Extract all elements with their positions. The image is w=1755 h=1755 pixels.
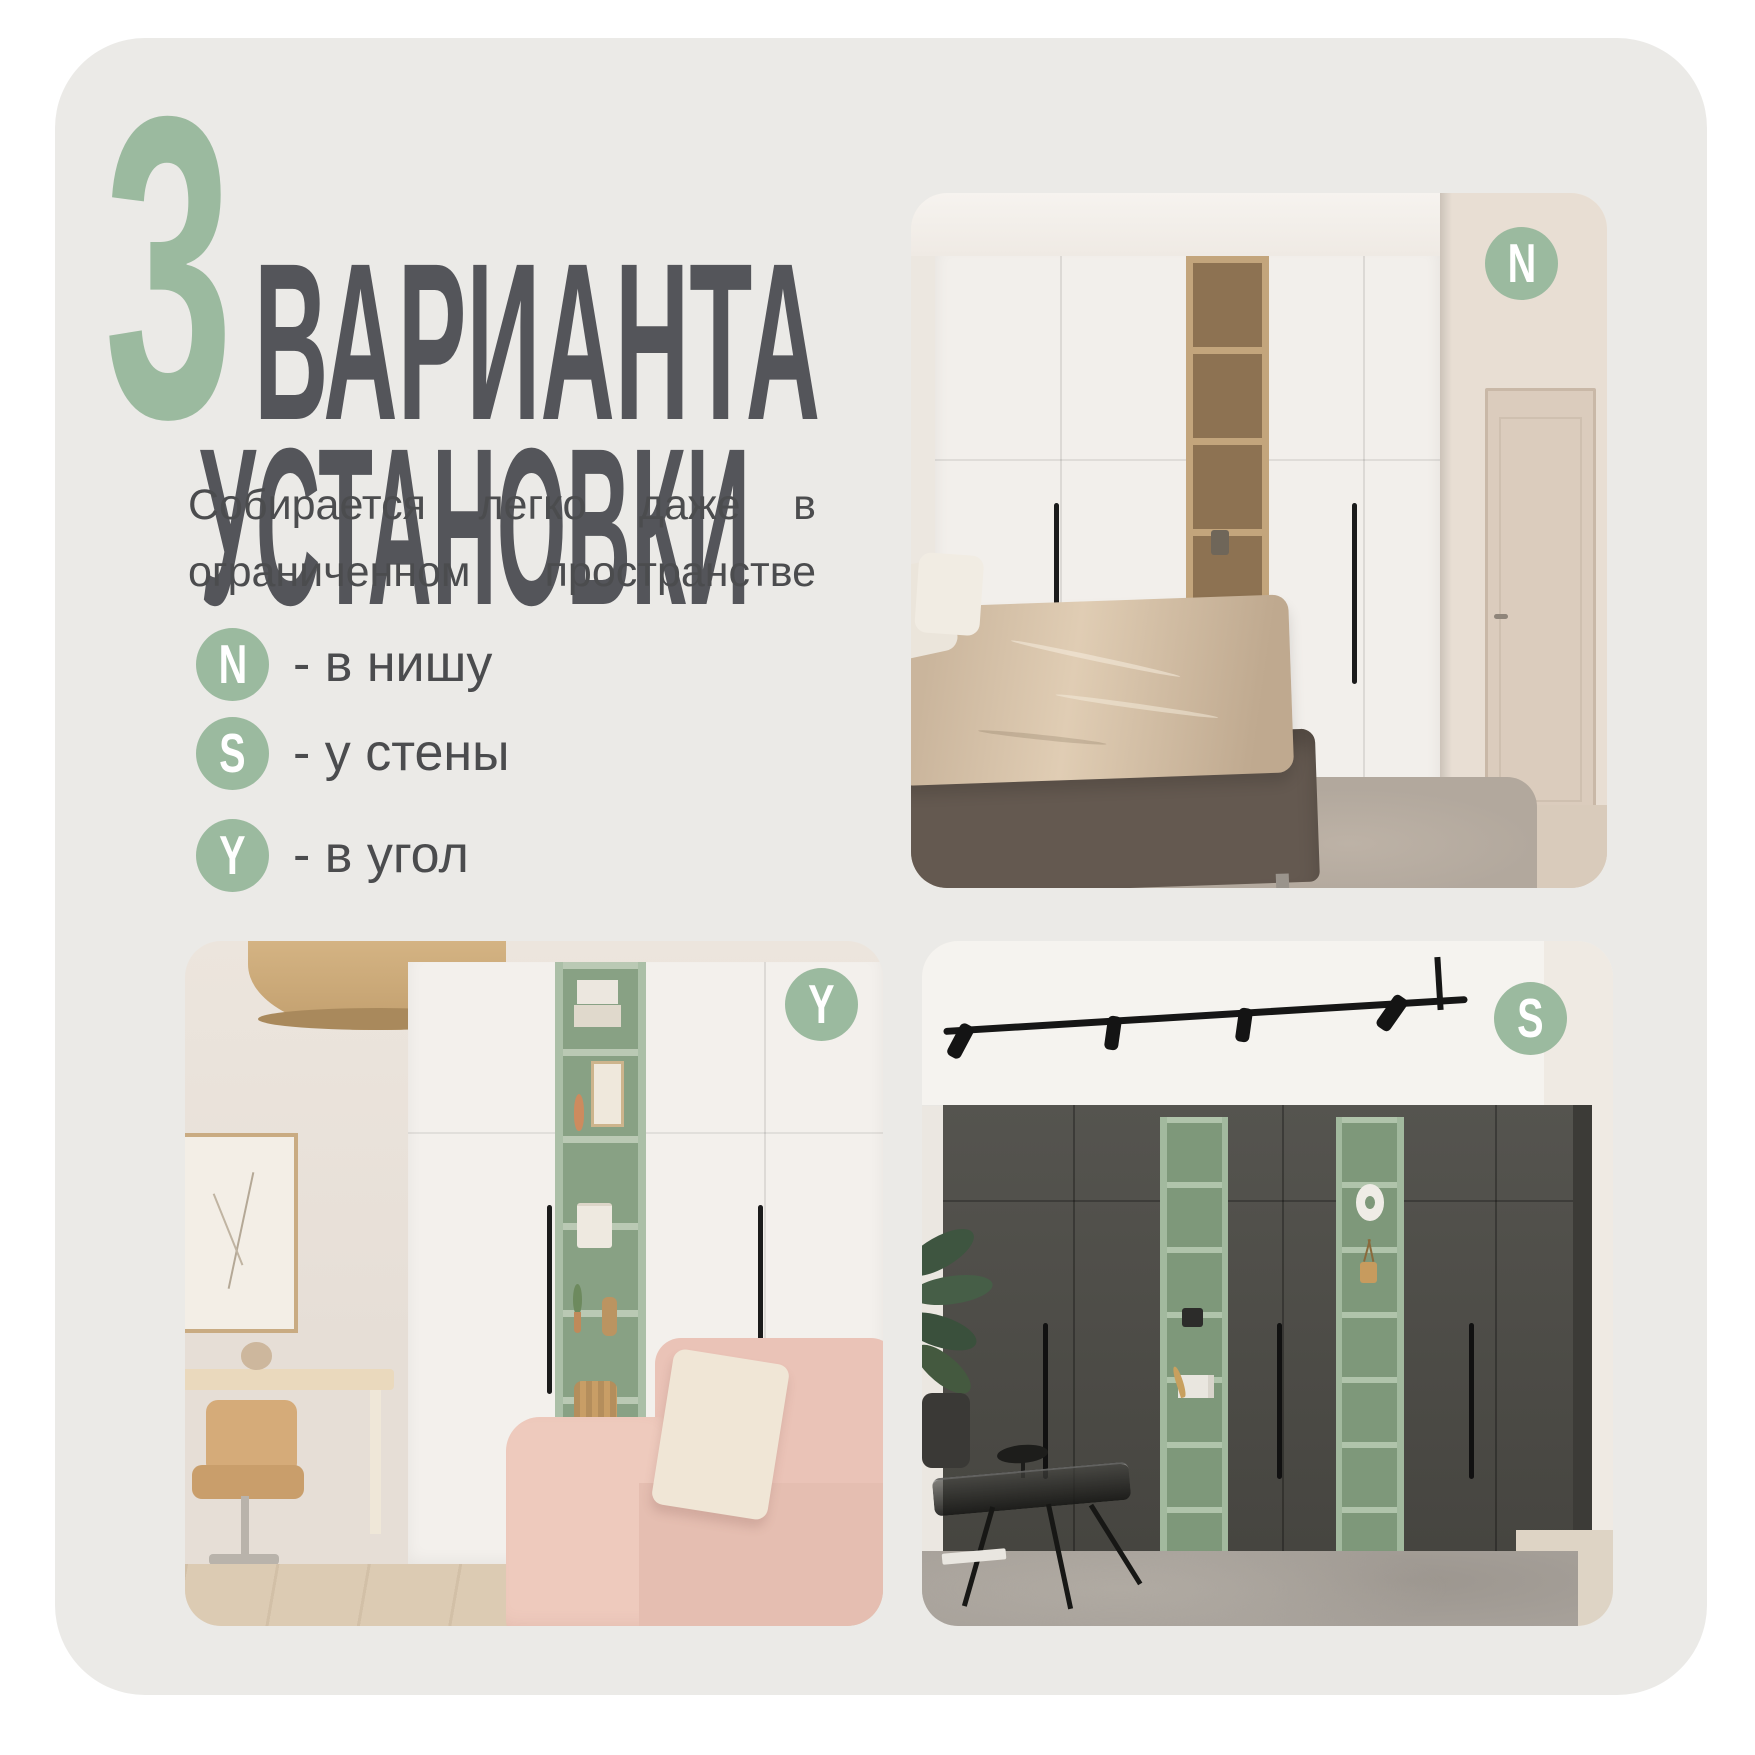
badge-y-letter: Y [219,828,245,883]
bed-leg [1276,873,1289,888]
photo-badge-y-letter: Y [808,977,834,1032]
photo-badge-y: Y [785,968,858,1041]
photo-badge-n-letter: N [1507,236,1536,291]
door-handle [1494,614,1508,619]
badge-n-icon: N [196,628,269,701]
shelf-plant-pot [574,1312,581,1333]
subtitle-word: пространстве [545,548,816,597]
legend-label-wall: - у стены [293,723,509,783]
wardrobe-handle [1277,1323,1282,1479]
shelf-boxes [574,1005,622,1027]
shelf-box [577,1203,613,1248]
chair-post [241,1496,249,1558]
diffuser-sticks [1367,1239,1374,1262]
door-panel-line [1499,417,1583,802]
desk-top [185,1369,394,1390]
door-seam [1495,1105,1497,1578]
photo-badge-s: S [1494,982,1567,1055]
big-number: 3 [104,112,233,425]
wardrobe-side-panel [1573,1105,1592,1578]
legend-item-niche: N - в нишу [196,627,492,701]
shelf-diffuser [1360,1262,1377,1283]
sofa [506,1338,883,1626]
shelf-jar [602,1297,617,1336]
subtitle-line-2: ограниченном пространстве [188,539,816,606]
coffee-table [929,1441,1143,1619]
photo-installation-niche: N [911,193,1607,888]
table-leg [1089,1504,1142,1585]
badge-n-letter: N [218,637,247,692]
legend-label-corner: - в угол [293,825,469,885]
legend-item-wall: S - у стены [196,716,509,790]
vase-hole [1365,1196,1375,1209]
wardrobe-handle [1469,1323,1474,1479]
chair-base [209,1554,279,1565]
door-seam [1282,1105,1284,1578]
wall-art-frame [185,1133,298,1333]
shelf-picture [591,1061,624,1127]
art-sketch-line [228,1172,255,1289]
pillow [914,552,984,636]
photo-badge-s-letter: S [1517,991,1543,1046]
track-spotlight [1374,993,1409,1033]
badge-s-icon: S [196,717,269,790]
subtitle-word: в [793,481,816,530]
table-leg [1046,1504,1073,1610]
subtitle: Собирается легко даже в ограниченном про… [188,472,816,606]
room-door [1485,388,1595,832]
badge-y-icon: Y [196,819,269,892]
shelf-plant [573,1284,582,1314]
shelf-decor-item [1211,530,1229,555]
photo-badge-n: N [1485,227,1558,300]
shelf-interior [1167,1117,1222,1578]
plant-leaf [922,1271,995,1311]
art-sketch-line [212,1193,243,1265]
bed [911,582,1320,888]
subtitle-word: ограниченном [188,548,470,597]
subtitle-line-1: Собирается легко даже в [188,472,816,539]
subtitle-word: легко [478,481,586,530]
shelf-boxes [577,980,619,1004]
cabinet-top-seam [408,1132,883,1134]
door-seam [1363,256,1365,805]
subtitle-word: даже [639,481,741,530]
shelf-interior [1342,1117,1397,1578]
promo-infographic: 3 ВАРИАНТА УСТАНОВКИ Собирается легко да… [0,0,1755,1755]
table-glass-top [932,1461,1132,1516]
wardrobe-handle [1352,503,1357,684]
badge-s-letter: S [219,726,245,781]
shelf-donut-vase [1356,1184,1384,1221]
desk-leg [370,1390,381,1534]
photo-installation-corner: Y [185,941,883,1626]
shelf-vase [574,1094,584,1130]
subtitle-word: Собирается [188,481,426,530]
chair-seat [192,1465,304,1499]
wall-shelf-column-green [1336,1117,1404,1578]
legend-label-niche: - в нишу [293,634,492,694]
shelf-decor-item [1182,1308,1203,1326]
legend-item-corner: Y - в угол [196,818,469,892]
wall-shelf-column-green [1160,1117,1228,1578]
chair-back [206,1400,297,1475]
photo-installation-wall: S [922,941,1613,1626]
track-light [943,965,1468,1068]
desk-vase [241,1342,272,1369]
